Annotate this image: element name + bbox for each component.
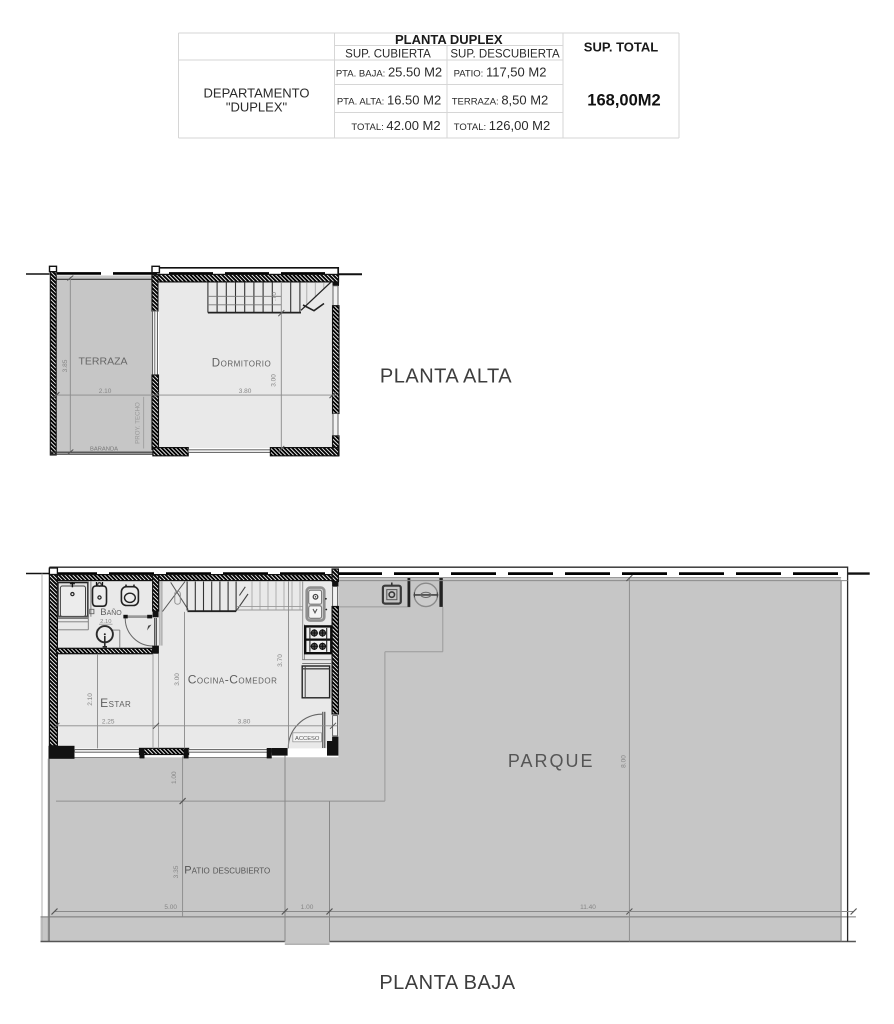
svg-text:3.35: 3.35 — [173, 865, 180, 878]
svg-text:3.00: 3.00 — [271, 374, 278, 387]
svg-text:3.85: 3.85 — [62, 359, 69, 372]
svg-text:Dormitorio: Dormitorio — [212, 358, 271, 370]
svg-text:2.10: 2.10 — [99, 388, 112, 395]
svg-text:Patio descubierto: Patio descubierto — [184, 865, 270, 877]
svg-text:PARQUE: PARQUE — [508, 751, 595, 771]
svg-text:PROY. TECHO: PROY. TECHO — [135, 402, 142, 444]
svg-text:Estar: Estar — [100, 696, 131, 710]
svg-text:BARANDA: BARANDA — [90, 447, 118, 453]
svg-text:PLANTA BAJA: PLANTA BAJA — [379, 972, 515, 994]
svg-text:PLANTA ALTA: PLANTA ALTA — [380, 366, 512, 388]
svg-text:SUP. DESCUBIERTA: SUP. DESCUBIERTA — [450, 49, 560, 61]
svg-text:11.40: 11.40 — [580, 904, 596, 911]
svg-text:168,00M2: 168,00M2 — [587, 92, 660, 110]
svg-text:3.80: 3.80 — [239, 388, 252, 395]
svg-text:1.00: 1.00 — [301, 904, 314, 911]
svg-text:1.00: 1.00 — [171, 771, 178, 784]
svg-text:Baño: Baño — [100, 607, 122, 618]
svg-text:2.10: 2.10 — [87, 693, 94, 706]
svg-text:3.70: 3.70 — [277, 654, 284, 667]
svg-text:ACCESO: ACCESO — [295, 736, 320, 742]
svg-text:"DUPLEX": "DUPLEX" — [226, 100, 288, 115]
svg-text:SUP. TOTAL: SUP. TOTAL — [584, 40, 658, 55]
svg-text:PLANTA DUPLEX: PLANTA DUPLEX — [395, 32, 503, 47]
svg-text:5.00: 5.00 — [164, 904, 177, 911]
svg-text:Cocina-Comedor: Cocina-Comedor — [188, 673, 278, 687]
svg-text:8.00: 8.00 — [621, 755, 628, 768]
svg-text:SUP. CUBIERTA: SUP. CUBIERTA — [345, 49, 431, 61]
svg-text:2.25: 2.25 — [102, 719, 115, 726]
svg-text:3.80: 3.80 — [238, 719, 251, 726]
svg-text:3.00: 3.00 — [174, 673, 181, 686]
svg-text:DEPARTAMENTO: DEPARTAMENTO — [204, 86, 310, 101]
svg-text:.70: .70 — [271, 292, 278, 301]
svg-text:TERRAZA: TERRAZA — [78, 356, 127, 368]
